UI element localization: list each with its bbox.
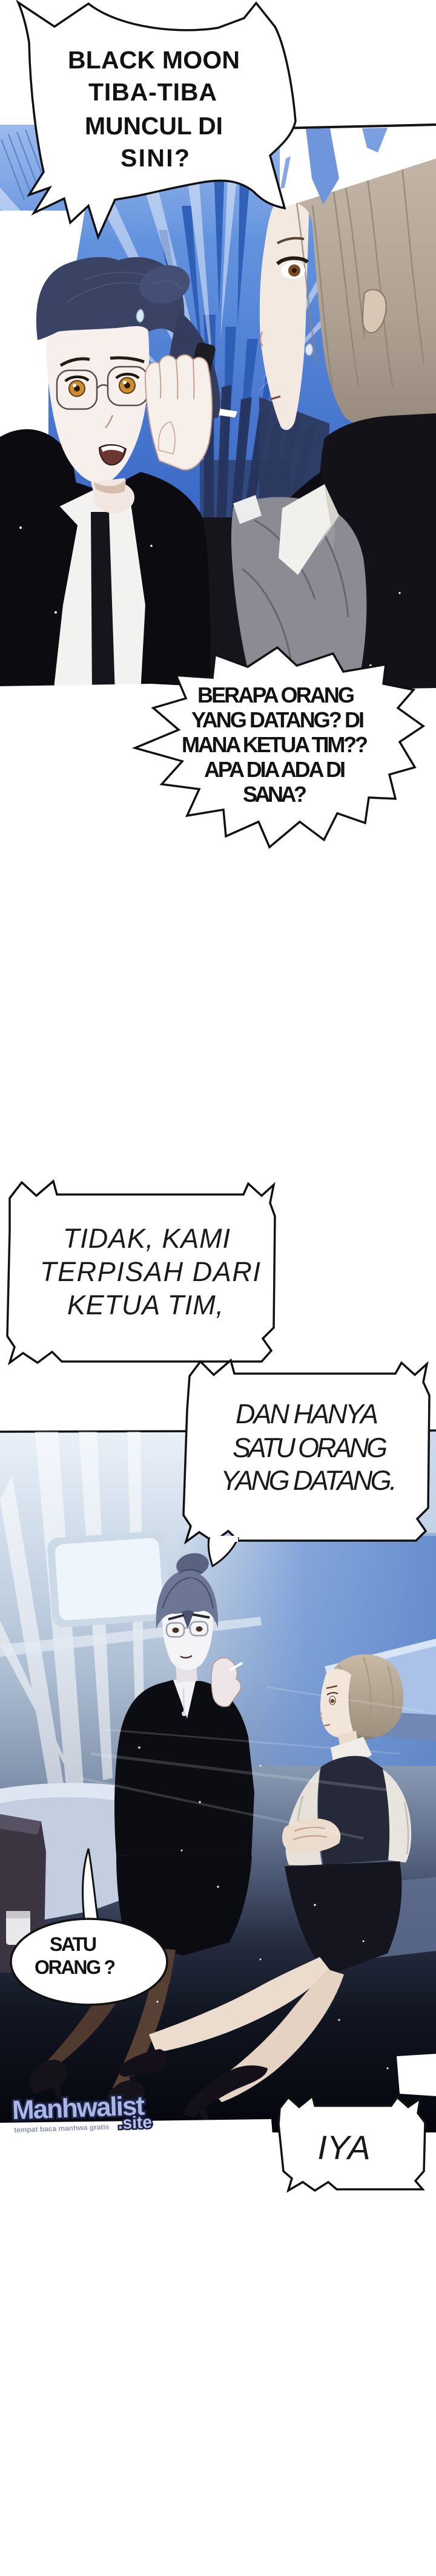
svg-text:SANA?: SANA?	[243, 782, 307, 807]
svg-text:BLACK MOON: BLACK MOON	[68, 46, 240, 74]
svg-text:MANA KETUA TIM??: MANA KETUA TIM??	[182, 732, 368, 757]
svg-text:SINI?: SINI?	[121, 144, 190, 172]
svg-text:TIBA-TIBA: TIBA-TIBA	[88, 78, 217, 106]
svg-text:TIDAK, KAMI: TIDAK, KAMI	[63, 1223, 230, 1254]
svg-text:ORANG ?: ORANG ?	[35, 1956, 116, 1978]
svg-text:SATU ORANG: SATU ORANG	[233, 1432, 388, 1463]
svg-text:BERAPA ORANG: BERAPA ORANG	[197, 683, 355, 707]
svg-text:IYA: IYA	[317, 2128, 370, 2166]
svg-text:DAN HANYA: DAN HANYA	[236, 1398, 378, 1429]
svg-text:TERPISAH DARI: TERPISAH DARI	[40, 1256, 260, 1287]
svg-text:YANG DATANG? DI: YANG DATANG? DI	[191, 707, 365, 732]
svg-text:APA DIA ADA DI: APA DIA ADA DI	[204, 757, 346, 782]
svg-text:MUNCUL DI: MUNCUL DI	[85, 112, 223, 140]
svg-text:SATU: SATU	[50, 1933, 97, 1955]
svg-text:.site: .site	[117, 2112, 152, 2132]
svg-text:YANG DATANG.: YANG DATANG.	[221, 1465, 397, 1496]
svg-text:KETUA TIM,: KETUA TIM,	[67, 1290, 223, 1320]
